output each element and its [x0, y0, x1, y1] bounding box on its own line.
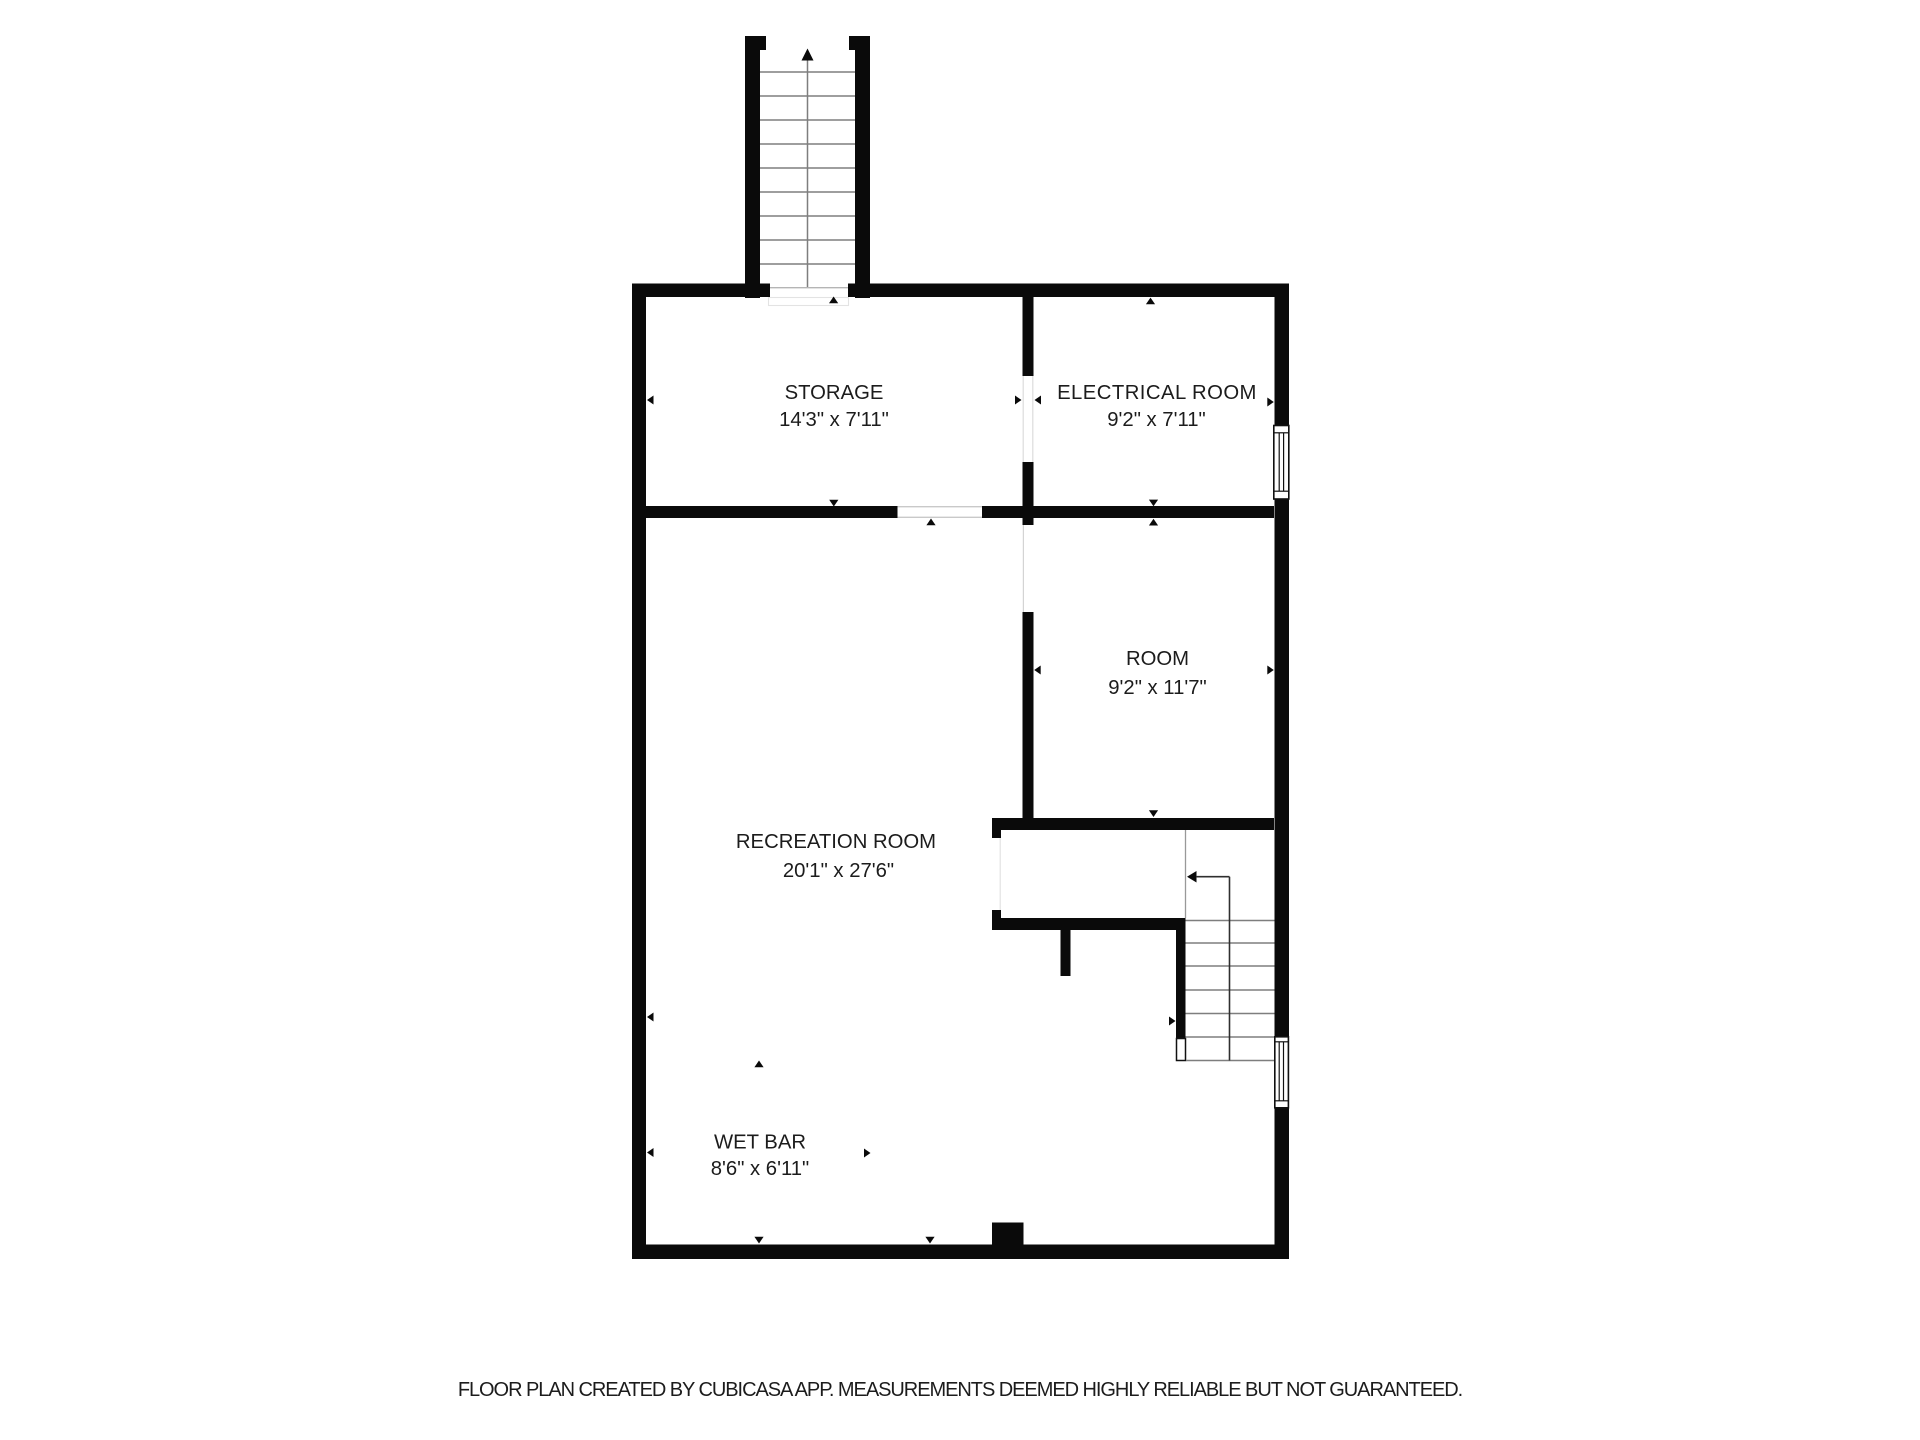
- svg-text:14'3" x 7'11": 14'3" x 7'11": [779, 409, 889, 431]
- svg-text:FLOOR PLAN CREATED BY CUBICASA: FLOOR PLAN CREATED BY CUBICASA APP. MEAS…: [458, 1379, 1462, 1401]
- svg-text:8'6" x 6'11": 8'6" x 6'11": [711, 1158, 809, 1180]
- svg-text:9'2" x 11'7": 9'2" x 11'7": [1108, 677, 1206, 699]
- svg-text:WET BAR: WET BAR: [714, 1132, 806, 1154]
- svg-text:RECREATION ROOM: RECREATION ROOM: [736, 831, 936, 853]
- svg-text:9'2" x 7'11": 9'2" x 7'11": [1107, 409, 1205, 431]
- svg-text:20'1" x 27'6": 20'1" x 27'6": [783, 860, 894, 882]
- svg-text:ROOM: ROOM: [1126, 648, 1189, 670]
- svg-text:STORAGE: STORAGE: [785, 382, 884, 404]
- svg-text:ELECTRICAL ROOM: ELECTRICAL ROOM: [1057, 382, 1257, 404]
